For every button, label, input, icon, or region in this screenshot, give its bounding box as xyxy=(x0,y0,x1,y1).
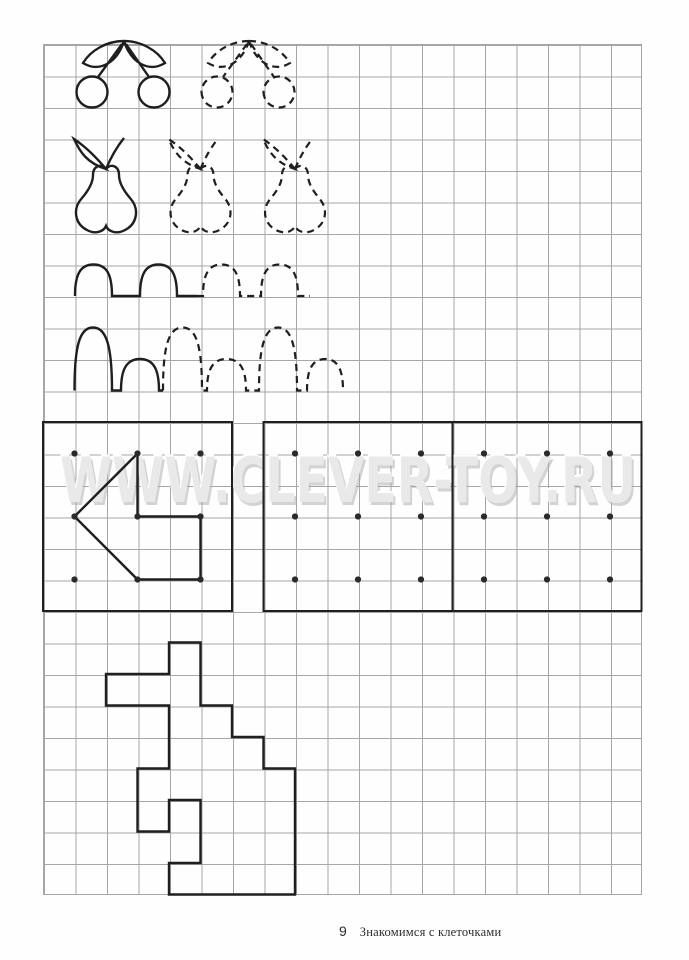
pear-traced-2 xyxy=(263,138,325,232)
dot-box-1-dot xyxy=(197,513,203,519)
pear-traced-1 xyxy=(169,138,231,232)
dot-box-1-dot xyxy=(71,450,77,456)
dot-box-3-dot xyxy=(607,450,613,456)
worksheet-page: WWW.CLEVER-TOY.RU WWW.CLEVER-TOY.RU WWW.… xyxy=(0,0,689,960)
page-caption: Знакомимся с клеточками xyxy=(360,925,502,940)
dot-box-3-dot xyxy=(544,513,550,519)
dot-box-2-dot xyxy=(418,450,424,456)
dot-box-1-dot xyxy=(134,576,140,582)
dot-box-1-dot xyxy=(134,450,140,456)
dot-box-3-dot xyxy=(607,513,613,519)
step-figure xyxy=(106,643,295,895)
wave-row1-solid xyxy=(75,265,197,297)
dot-box-1-dot xyxy=(71,513,77,519)
dot-box-3-dot xyxy=(481,576,487,582)
dot-box-2-dot xyxy=(292,513,298,519)
dot-box-2-dot xyxy=(292,450,298,456)
dot-box-2-dot xyxy=(418,576,424,582)
watermark: WWW.CLEVER-TOY.RU WWW.CLEVER-TOY.RU WWW.… xyxy=(59,442,638,520)
dot-box-1-dot xyxy=(71,576,77,582)
dot-box-2-dot xyxy=(292,576,298,582)
cherries-solid xyxy=(77,41,170,108)
dot-box-3-dot xyxy=(481,450,487,456)
dot-box-1-dot xyxy=(197,576,203,582)
dot-box-3-dot xyxy=(544,576,550,582)
dot-box-2-dot xyxy=(355,513,361,519)
dot-box-2-dot xyxy=(355,450,361,456)
wave-row1-traced xyxy=(197,265,310,297)
dot-box-3-dot xyxy=(607,576,613,582)
dot-box-1-dot xyxy=(134,513,140,519)
cherries-traced xyxy=(202,41,295,108)
dot-box-2-dot xyxy=(418,513,424,519)
pear-solid xyxy=(74,138,136,232)
wave-row2-traced xyxy=(163,328,343,391)
dot-box-3-dot xyxy=(481,513,487,519)
wave-row2-solid xyxy=(75,328,164,391)
dot-box-2-dot xyxy=(355,576,361,582)
page-footer: 9 Знакомимся с клеточками xyxy=(339,923,501,940)
page-number: 9 xyxy=(339,923,347,939)
dot-box-1-dot xyxy=(197,450,203,456)
dot-box-3-dot xyxy=(544,450,550,456)
worksheet-art: WWW.CLEVER-TOY.RU WWW.CLEVER-TOY.RU WWW.… xyxy=(0,0,689,960)
